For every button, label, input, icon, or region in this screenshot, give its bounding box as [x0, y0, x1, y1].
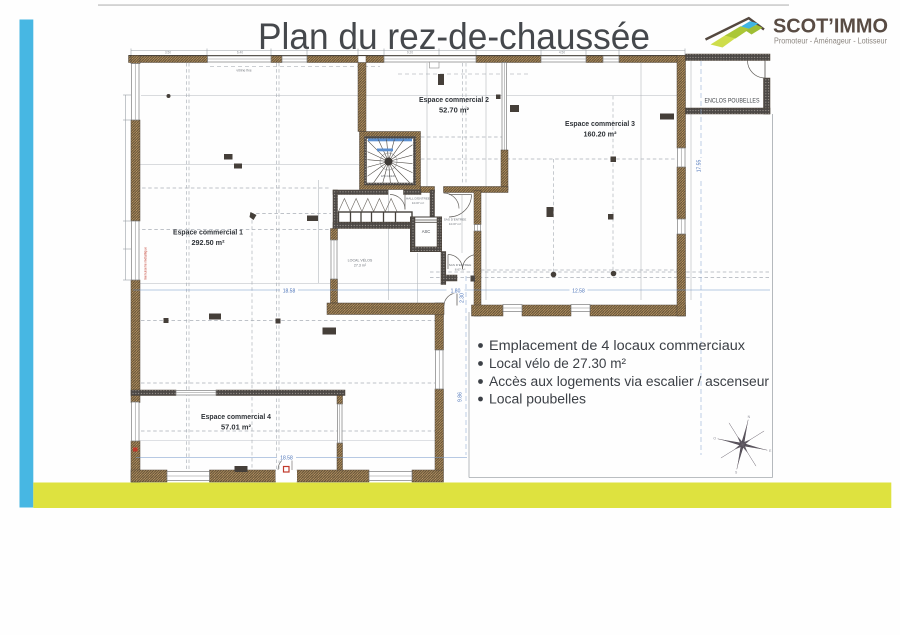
svg-text:2.30: 2.30	[460, 293, 466, 303]
svg-text:O: O	[713, 436, 716, 440]
svg-text:9.20: 9.20	[407, 51, 413, 55]
svg-text:Espace commercial 4: Espace commercial 4	[201, 412, 272, 421]
svg-text:Local poubelles: Local poubelles	[489, 392, 586, 407]
svg-text:Espace commercial 2: Espace commercial 2	[419, 95, 489, 104]
svg-text:4.50: 4.50	[559, 51, 565, 55]
svg-text:ASC: ASC	[422, 229, 431, 234]
svg-text:Promoteur - Aménageur - Lotiss: Promoteur - Aménageur - Lotisseur	[774, 37, 887, 46]
svg-text:Espace commercial 3: Espace commercial 3	[565, 119, 635, 128]
svg-text:Accès aux logements via escali: Accès aux logements via escalier / ascen…	[489, 374, 770, 389]
svg-text:8.67 m²: 8.67 m²	[455, 267, 466, 271]
svg-text:12.58: 12.58	[572, 288, 585, 294]
svg-text:18.58: 18.58	[280, 456, 293, 462]
svg-text:LOCAL VÉLOS: LOCAL VÉLOS	[348, 258, 373, 263]
svg-text:ENCLOS POUBELLES: ENCLOS POUBELLES	[705, 99, 760, 105]
svg-text:vitrine fixe: vitrine fixe	[236, 69, 251, 73]
svg-text:menuiserie métallique: menuiserie métallique	[144, 247, 148, 280]
svg-text:Emplacement de 4 locaux commer: Emplacement de 4 locaux commerciaux	[489, 338, 745, 353]
svg-text:ESCALIER: ESCALIER	[381, 174, 395, 178]
svg-text:27.3 m²: 27.3 m²	[354, 264, 367, 268]
svg-text:9.86: 9.86	[458, 392, 464, 402]
svg-text:Local vélo de 27.30 m²: Local vélo de 27.30 m²	[489, 356, 627, 371]
svg-text:6.40: 6.40	[237, 51, 243, 55]
svg-text:10.07 m²: 10.07 m²	[449, 222, 461, 226]
svg-text:Espace commercial 1: Espace commercial 1	[173, 228, 244, 237]
svg-text:3.50: 3.50	[165, 51, 171, 55]
svg-text:57.01 m²: 57.01 m²	[221, 423, 252, 432]
svg-text:17.55: 17.55	[697, 160, 703, 173]
svg-text:10.07 m²: 10.07 m²	[412, 201, 424, 205]
svg-text:292.50 m²: 292.50 m²	[192, 238, 226, 247]
svg-text:52.70 m²: 52.70 m²	[439, 106, 470, 115]
svg-text:160.20 m²: 160.20 m²	[584, 130, 618, 139]
svg-text:SCOT’IMMO: SCOT’IMMO	[773, 15, 888, 38]
svg-text:18.58: 18.58	[283, 288, 296, 294]
